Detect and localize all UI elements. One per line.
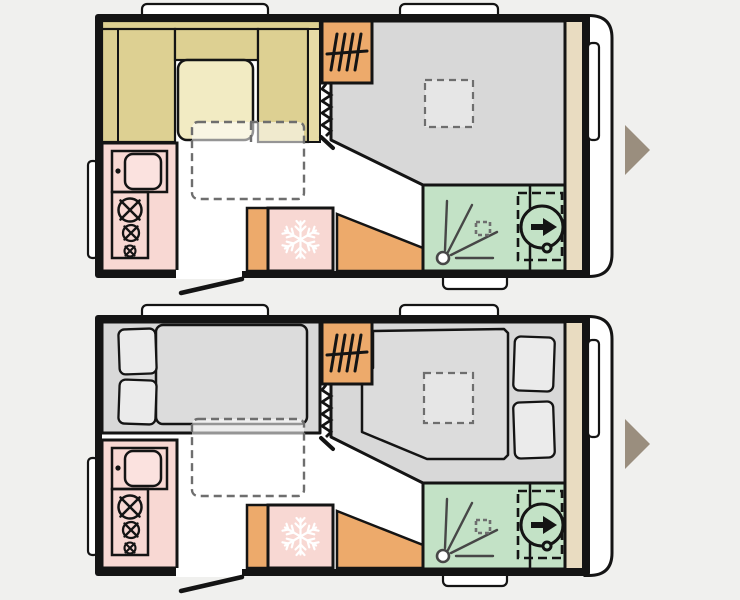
bed-conversion-outline bbox=[192, 419, 304, 496]
dinette-bench-top bbox=[175, 29, 258, 60]
floorplan-canvas bbox=[0, 0, 740, 600]
bed-conversion-outline bbox=[192, 122, 304, 199]
skylight-outline bbox=[425, 80, 473, 127]
pillow bbox=[118, 379, 157, 424]
overhead-locker-strip bbox=[565, 322, 583, 569]
dinette-bench-left bbox=[102, 29, 175, 142]
entrance-door-opening bbox=[176, 568, 242, 577]
skylight-outline bbox=[424, 373, 473, 423]
pillow bbox=[513, 336, 555, 391]
dinette-side-shelf bbox=[308, 29, 320, 142]
floorplan-night bbox=[88, 305, 650, 591]
front-window bbox=[588, 43, 599, 140]
bathroom-block bbox=[423, 185, 565, 271]
pillow bbox=[118, 328, 157, 374]
bathroom-block bbox=[423, 483, 565, 569]
overhead-locker-strip bbox=[565, 21, 583, 271]
entrance-door-opening bbox=[176, 270, 242, 279]
pillow bbox=[513, 401, 555, 458]
kitchen-block bbox=[102, 440, 177, 568]
rear-bed-mattress bbox=[156, 325, 307, 424]
floorplan-day bbox=[88, 4, 650, 293]
front-window bbox=[588, 340, 599, 437]
kitchen-block bbox=[102, 143, 177, 271]
